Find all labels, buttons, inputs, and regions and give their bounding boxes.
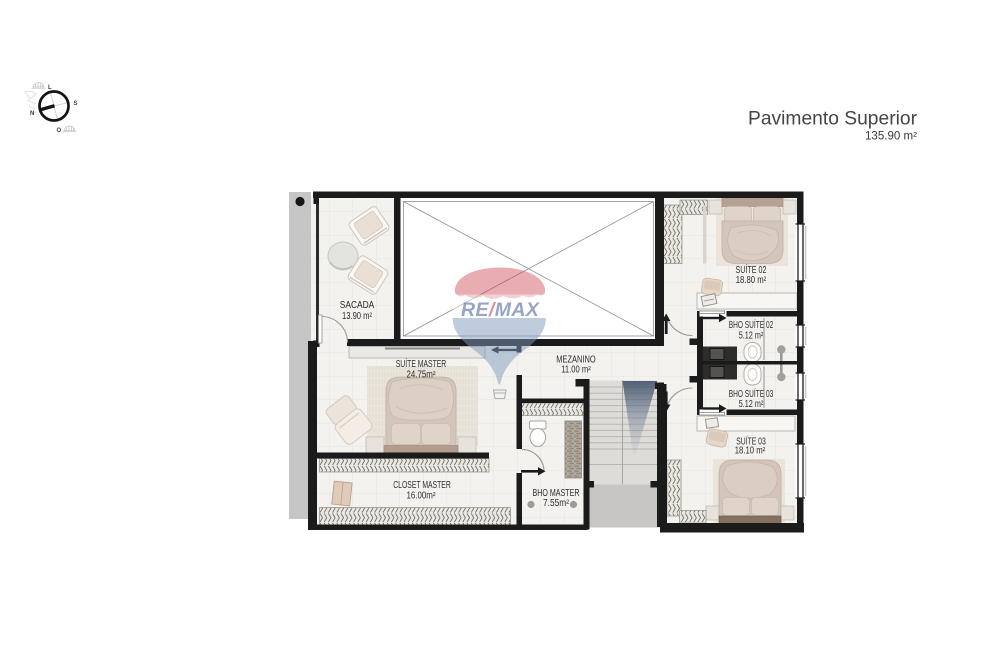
svg-text:SUÍTE MASTER: SUÍTE MASTER — [396, 359, 447, 370]
svg-text:O: O — [57, 128, 62, 134]
svg-text:5.12 m²: 5.12 m² — [739, 399, 764, 410]
svg-text:7.55m²: 7.55m² — [543, 498, 570, 509]
svg-text:N: N — [30, 111, 34, 117]
svg-text:RE/MAX: RE/MAX — [461, 299, 540, 321]
svg-text:16.00m²: 16.00m² — [407, 491, 437, 502]
svg-text:11.00 m²: 11.00 m² — [561, 365, 591, 376]
svg-text:24.75m²: 24.75m² — [407, 370, 437, 381]
svg-text:SACADA: SACADA — [340, 300, 375, 311]
svg-text:BHO SUÍTE 02: BHO SUÍTE 02 — [729, 320, 774, 331]
svg-text:5.12 m²: 5.12 m² — [739, 331, 764, 342]
svg-text:18.10 m²: 18.10 m² — [735, 446, 766, 457]
svg-text:Pavimento Superior: Pavimento Superior — [748, 108, 917, 130]
svg-text:18.80 m²: 18.80 m² — [736, 275, 767, 286]
svg-text:L: L — [48, 85, 52, 91]
svg-text:CLOSET MASTER: CLOSET MASTER — [393, 480, 451, 491]
svg-text:S: S — [74, 101, 78, 107]
svg-text:13.90 m²: 13.90 m² — [342, 311, 373, 322]
svg-text:135.90 m²: 135.90 m² — [865, 131, 917, 143]
